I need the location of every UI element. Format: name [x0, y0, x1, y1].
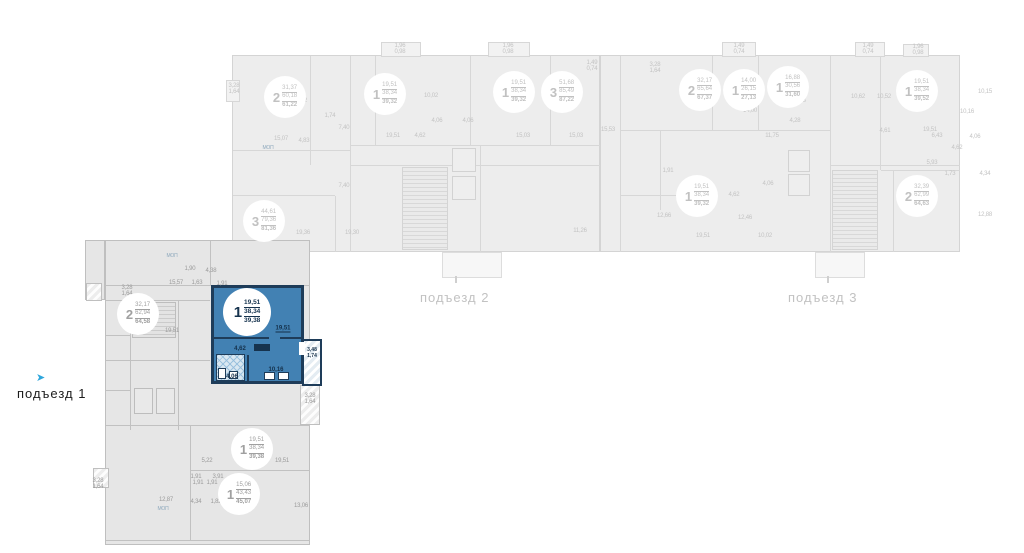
elevator-icon — [788, 150, 810, 172]
kitchen-sink-icon — [278, 372, 289, 380]
area-label: 1,74 — [325, 113, 336, 119]
entrance-mark — [455, 276, 457, 283]
wall — [106, 390, 130, 391]
area-label: 19,51 — [696, 233, 710, 239]
entrance-vestibule — [815, 252, 865, 278]
area-label: 15,57 — [169, 280, 183, 286]
area-label: 10,02 — [424, 93, 438, 99]
entrance-mark — [827, 276, 829, 283]
area-label: 1,64 — [229, 89, 240, 95]
wall — [620, 56, 621, 252]
unit-badge[interactable]: 119,5138,3439,32 — [676, 175, 718, 217]
wall — [214, 337, 269, 339]
wall — [106, 335, 130, 336]
unit-badge[interactable]: 116,8830,5631,60 — [767, 66, 809, 108]
area-label: 1,91 — [207, 480, 218, 486]
unit-badge-selected[interactable]: 119,5138,3439,38 — [223, 288, 271, 336]
wall — [106, 540, 310, 541]
area-label: 1,63 — [192, 280, 203, 286]
area-label: 0,74 — [587, 66, 598, 72]
area-label: 10,52 — [877, 94, 891, 100]
wall — [480, 146, 481, 252]
balcony-outline — [86, 283, 102, 301]
area-label: 4,61 — [880, 128, 891, 134]
room-area-bath: 4,06 — [226, 374, 238, 380]
wall — [830, 56, 831, 252]
wall — [280, 337, 301, 339]
unit-badge[interactable]: 344,6179,3681,36 — [243, 200, 285, 242]
area-label: 19,51 — [165, 328, 179, 334]
unit-badge[interactable]: 119,5138,3439,52 — [896, 70, 938, 112]
area-label: 1,64 — [650, 68, 661, 74]
elevator-icon — [134, 388, 153, 414]
area-label: 4,62 — [729, 192, 740, 198]
area-label: 19,51 — [386, 133, 400, 139]
stairs-icon — [402, 167, 448, 250]
area-label: 11,75 — [765, 133, 779, 139]
area-label: 19,30 — [345, 230, 359, 236]
wall — [351, 145, 600, 146]
wall — [893, 170, 894, 252]
area-label: 1,91 — [217, 281, 228, 287]
section-label-podezd-2[interactable]: подъезд 2 — [420, 290, 489, 305]
entrance-vestibule — [442, 252, 502, 278]
area-label: 1,64 — [93, 484, 104, 490]
unit-badge[interactable]: 119,5138,3439,32 — [493, 71, 535, 113]
stairs-icon — [832, 170, 878, 250]
area-label: 10,02 — [758, 233, 772, 239]
area-label: 1,90 — [185, 266, 196, 272]
area-label: 4,83 — [299, 138, 310, 144]
area-label: 1,91 — [193, 480, 204, 486]
area-label: 4,06 — [763, 181, 774, 187]
elevator-icon — [788, 174, 810, 196]
area-label: 11,26 — [573, 228, 587, 234]
area-label: 4,06 — [463, 118, 474, 124]
area-label: 15,03 — [516, 133, 530, 139]
floor-plan-canvas: 19,51 4,62 4,06 10,16 3,48 1,74 231,3760… — [0, 0, 1024, 553]
area-label: 4,34 — [191, 499, 202, 505]
unit-badge[interactable]: 232,1762,9464,58 — [117, 293, 159, 335]
area-label: 12,66 — [657, 213, 671, 219]
unit-badge[interactable]: 232,1765,6467,37 — [679, 69, 721, 111]
area-label: 19,36 — [296, 230, 310, 236]
area-label: 15,03 — [569, 133, 583, 139]
wall — [106, 360, 210, 361]
area-label: 4,62 — [952, 145, 963, 151]
area-label: 4,06 — [970, 134, 981, 140]
area-label: 10,15 — [978, 89, 992, 95]
area-label: 10,16 — [960, 109, 974, 115]
wall — [233, 195, 335, 196]
area-label: 0,98 — [913, 50, 924, 56]
balcony-outline — [300, 385, 320, 425]
balcony-area-reduced: 1,74 — [307, 353, 317, 359]
area-label: 0,74 — [734, 49, 745, 55]
toilet-icon — [218, 368, 226, 379]
area-label: 0,98 — [503, 49, 514, 55]
area-label: 4,28 — [790, 118, 801, 124]
balcony-door-gap — [299, 342, 305, 355]
area-label: МОП — [157, 506, 168, 512]
area-label: 19,51 — [275, 458, 289, 464]
entrance-arrow-icon: ➤ — [36, 373, 45, 384]
stove-icon — [264, 372, 275, 380]
wall — [310, 56, 311, 165]
wall — [350, 56, 351, 252]
unit-badge[interactable]: 114,0026,1527,13 — [723, 69, 765, 111]
room-area-living: 19,51 — [275, 326, 290, 333]
area-label: МОП — [262, 145, 273, 151]
wall — [247, 355, 249, 381]
wall — [233, 150, 350, 151]
section-label-podezd-1[interactable]: подъезд 1 — [17, 386, 86, 401]
area-label: 4,06 — [432, 118, 443, 124]
area-label: 7,40 — [339, 183, 350, 189]
wall — [106, 425, 310, 426]
area-label: 12,46 — [738, 215, 752, 221]
area-label: 4,34 — [980, 171, 991, 177]
elevator-icon — [156, 388, 175, 414]
area-label: 0,74 — [863, 49, 874, 55]
wall — [880, 56, 881, 170]
area-label: 15,53 — [601, 127, 615, 133]
kitchen-cabinet-icon — [254, 344, 270, 351]
elevator-icon — [452, 176, 476, 200]
area-label: 1,91 — [663, 168, 674, 174]
area-label: 6,43 — [932, 133, 943, 139]
wall — [190, 426, 191, 540]
area-label: 0,98 — [395, 49, 406, 55]
area-label: 4,62 — [415, 133, 426, 139]
elevator-icon — [452, 148, 476, 172]
unit-badge[interactable]: 232,3962,9964,63 — [896, 175, 938, 217]
area-label: МОП — [166, 253, 177, 259]
area-label: 12,87 — [159, 497, 173, 503]
area-label: 12,88 — [978, 212, 992, 218]
room-area-hall: 4,62 — [234, 346, 246, 352]
unit-badge[interactable]: 231,3760,1861,22 — [264, 76, 306, 118]
wall — [621, 130, 830, 131]
area-label: 10,62 — [851, 94, 865, 100]
area-label: 5,93 — [927, 160, 938, 166]
unit-badge[interactable]: 115,0643,4345,07 — [218, 473, 260, 515]
wall — [210, 241, 211, 285]
unit-badge[interactable]: 351,6885,4987,22 — [541, 71, 583, 113]
wall — [178, 300, 179, 430]
unit-badge[interactable]: 119,5138,3439,38 — [231, 428, 273, 470]
area-label: 7,40 — [339, 125, 350, 131]
unit-badge[interactable]: 119,5138,3439,32 — [364, 73, 406, 115]
wall — [831, 165, 960, 166]
area-label: 1,64 — [305, 399, 316, 405]
wall — [660, 130, 661, 210]
area-label: 15,07 — [274, 136, 288, 142]
area-label: 1,73 — [945, 171, 956, 177]
room-area-kitchen: 10,16 — [268, 367, 283, 373]
area-label: 4,38 — [206, 268, 217, 274]
section-label-podezd-3[interactable]: подъезд 3 — [788, 290, 857, 305]
wall — [335, 196, 336, 252]
area-label: 13,06 — [294, 503, 308, 509]
wall — [470, 56, 471, 145]
area-label: 5,22 — [202, 458, 213, 464]
wall — [190, 470, 310, 471]
